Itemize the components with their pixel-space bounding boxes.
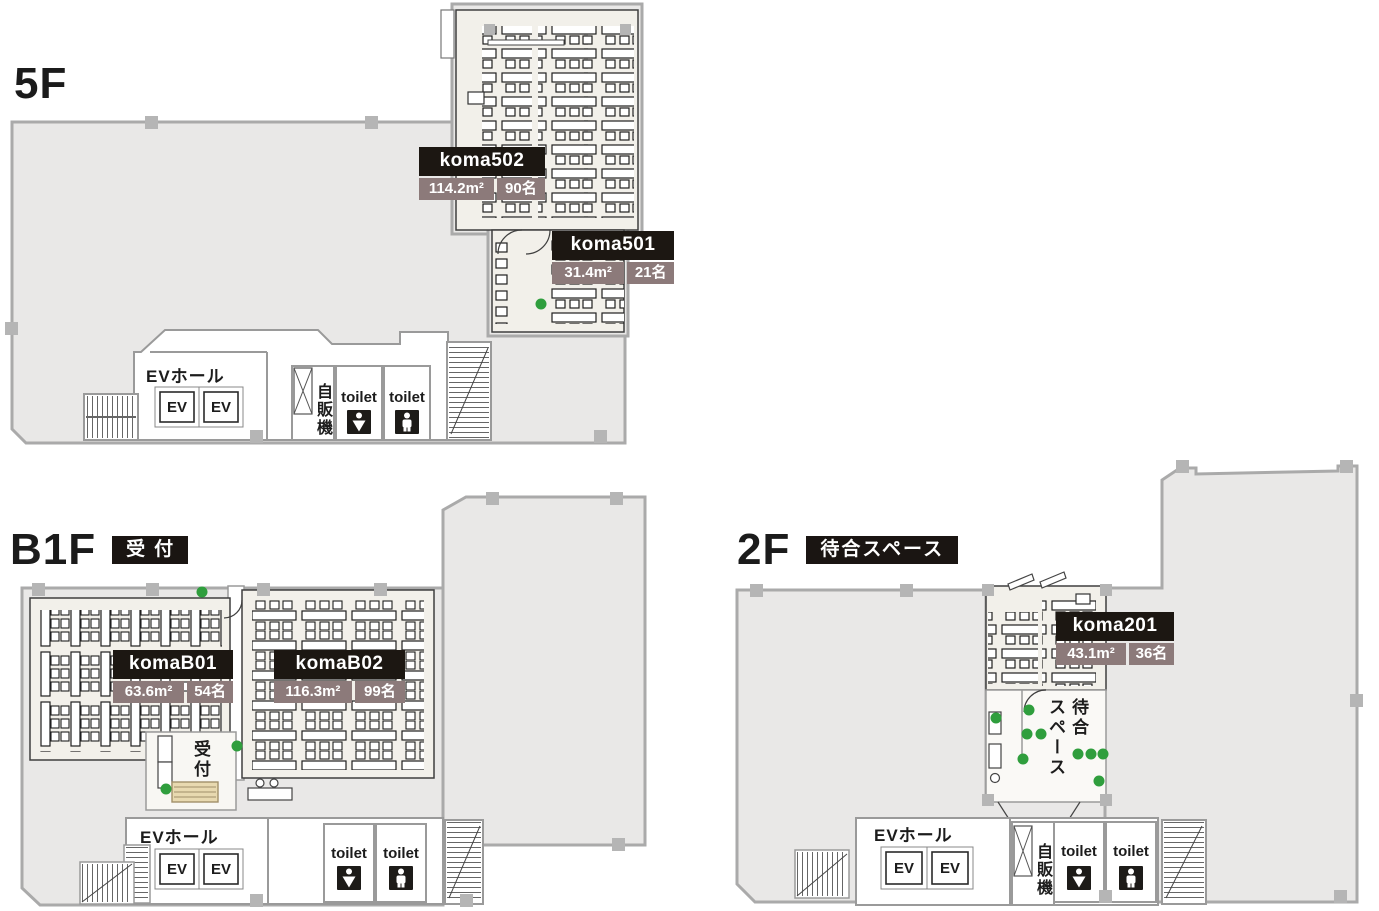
b1f-reception-label: 受付 <box>189 740 212 780</box>
toilet-female-icon <box>337 866 361 890</box>
f2-toilet-label-male: toilet <box>1106 844 1156 859</box>
f5-ev-label-1: EV <box>160 392 194 422</box>
f5-ev-hall-label: EVホール <box>146 368 225 385</box>
green-dot <box>536 299 547 310</box>
room-capacity: 99名 <box>355 681 405 704</box>
room-name: koma502 <box>419 147 545 176</box>
reception-badge: 受付 <box>112 536 188 564</box>
cabinet <box>441 10 454 58</box>
f2-vending-label: 自販機 <box>1031 843 1054 897</box>
f2-stairs-right <box>1162 820 1206 904</box>
b1f-toilet-label-female: toilet <box>324 846 374 861</box>
room-label-koma501: koma501 31.4m² 21名 <box>552 231 674 284</box>
b1f-toilet-rooms <box>324 824 426 902</box>
f5-ev-label-2: EV <box>204 392 238 422</box>
room-name: koma201 <box>1056 612 1174 641</box>
waiting-space-badge: 待合スペース <box>806 536 958 564</box>
floor-title-2f: 2F <box>737 528 790 572</box>
room-label-komaB01: komaB01 63.6m² 54名 <box>113 650 233 703</box>
toilet-female-icon <box>1067 866 1091 890</box>
room-name: komaB02 <box>274 650 405 679</box>
room-capacity: 90名 <box>497 178 545 201</box>
floorplan-page: 5F B1F 受付 2F 待合スペース koma502 114.2m² 90名 … <box>0 0 1379 911</box>
room-area: 31.4m² <box>552 262 624 285</box>
room-capacity: 54名 <box>187 681 233 704</box>
toilet-male-icon <box>1119 866 1143 890</box>
equipment-box <box>468 92 484 104</box>
room-area: 116.3m² <box>274 681 352 704</box>
toilet-male-icon <box>389 866 413 890</box>
floor-title-b1f: B1F <box>10 528 96 572</box>
toilet-female-icon <box>347 410 371 434</box>
f2-ev-label-1: EV <box>886 852 922 884</box>
room-name: komaB01 <box>113 650 233 679</box>
equipment-box <box>1076 594 1090 604</box>
f2-stairs-left <box>795 850 849 898</box>
floor-b1f-header: B1F 受付 <box>10 528 188 572</box>
floor-2f-plan <box>737 460 1363 905</box>
f2-waiting-space-label: 待合 スペース <box>1044 698 1090 778</box>
floor-title-5f: 5F <box>14 62 67 106</box>
f5-toilet-label-female: toilet <box>336 390 382 405</box>
b1f-ev-label-2: EV <box>204 854 238 884</box>
room-label-koma201: koma201 43.1m² 36名 <box>1056 612 1174 665</box>
room-name: koma501 <box>552 231 674 260</box>
f5-stairs-right <box>447 342 491 440</box>
b1f-ev-hall-label: EVホール <box>140 829 219 846</box>
f2-toilet-label-female: toilet <box>1054 844 1104 859</box>
f5-toilet-label-male: toilet <box>384 390 430 405</box>
room-capacity: 36名 <box>1129 643 1174 666</box>
room-capacity: 21名 <box>627 262 674 285</box>
f2-ev-label-2: EV <box>932 852 968 884</box>
floor-2f-header: 2F 待合スペース <box>737 528 958 572</box>
room-label-komaB02: komaB02 116.3m² 99名 <box>274 650 405 703</box>
floor-5f-header: 5F <box>14 62 67 106</box>
b1f-floor-outline-right <box>443 497 645 845</box>
room-area: 43.1m² <box>1056 643 1126 666</box>
f2-ev-hall-label: EVホール <box>874 827 953 844</box>
room-area: 63.6m² <box>113 681 184 704</box>
reception-desk <box>172 782 218 802</box>
floor-5f-plan <box>5 4 642 443</box>
b1f-toilet-label-male: toilet <box>376 846 426 861</box>
b1f-ev-label-1: EV <box>160 854 194 884</box>
room-area: 114.2m² <box>419 178 494 201</box>
f5-vending-label: 自販機 <box>311 383 334 437</box>
toilet-male-icon <box>395 410 419 434</box>
whiteboard <box>488 40 564 45</box>
room-label-koma502: koma502 114.2m² 90名 <box>419 147 545 200</box>
b1f-stairs-right <box>445 820 483 904</box>
f5-stairs-left <box>84 394 138 440</box>
